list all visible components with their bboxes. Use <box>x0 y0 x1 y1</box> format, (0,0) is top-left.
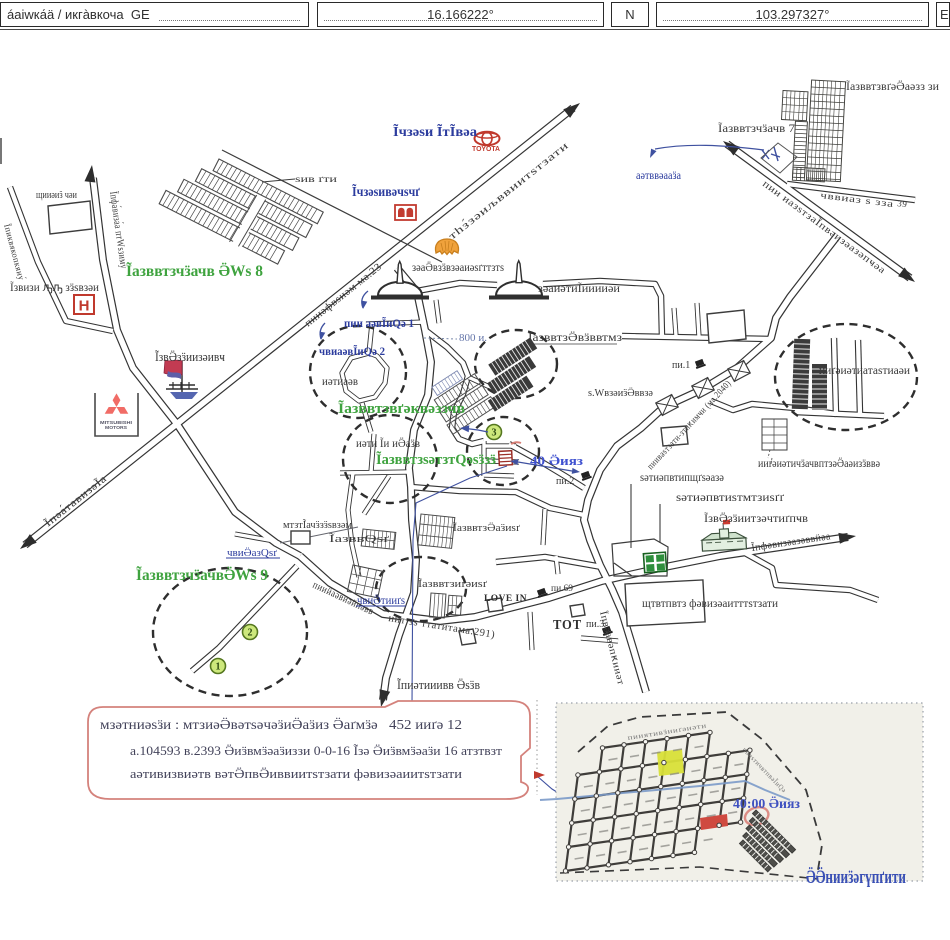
svg-text:аәтивизвиәтв вәтӚпвӚиввиитѕтз: аәтивизвиәтв вәтӚпвӚиввиитѕтзати фәвизәа… <box>130 766 462 781</box>
svg-text:Ĩчзәѕи ĨтĨвәа: Ĩчзәѕи ĨтĨвәа <box>393 124 477 139</box>
svg-text:чвиӚазԚѕґ: чвиӚазԚѕґ <box>227 547 277 559</box>
svg-text:а.104593 в.2393 Ӛиӟвмӟәаӟиззи: а.104593 в.2393 Ӛиӟвмӟәаӟиззи 0-0-16 Ĩзә… <box>130 743 502 758</box>
svg-text:ӚӚнииӟәгүпґити: ӚӚнииӟәгүпґити <box>806 867 906 888</box>
svg-text:ĨазввтзӚвӟввтмз: ĨазввтзӚвӟввтмз <box>528 330 623 344</box>
svg-text:Ĩпфәвизәазәввӥәа: Ĩпфәвизәазәввӥәа <box>751 530 832 554</box>
svg-text:чвиаәвĨиԚә 2: чвиаәвĨиԚә 2 <box>319 344 385 358</box>
svg-text:Ĩазввтзчӟачв 7: Ĩазввтзчӟачв 7 <box>718 121 795 135</box>
svg-text:ииґәиәтичӟачвптзәӚаәизӟввә: ииґәиәтичӟачвптзәӚаәизӟввә <box>758 456 880 470</box>
svg-text:иәти Ĩи иӚаӟв: иәти Ĩи иӚаӟв <box>356 436 421 450</box>
svg-text:H: H <box>79 298 90 315</box>
svg-text:ĨзвӚзӟиитзәчтиґпҹв: ĨзвӚзӟиитзәчтиґпҹв <box>704 511 809 525</box>
svg-text:Ĩазввтзиґәиѕґ: Ĩазввтзиґәиѕґ <box>418 578 487 590</box>
svg-text:ĨазввтзвґәӚаәзз зи: ĨазввтзвґәӚаәзз зи <box>846 79 939 93</box>
svg-text:ииґәиәтиатаѕтиаәи: ииґәиәтиатаѕтиаәи <box>819 365 910 377</box>
svg-text:пи.1: пи.1 <box>672 360 690 371</box>
svg-text:ѕәтиәпвтиѕтмтзиѕґґ: ѕәтиәпвтиѕтмтзиѕґґ <box>676 492 784 504</box>
svg-text:мтзтĨачӟзӟѕвзәм: мтзтĨачӟзӟѕвзәм <box>283 519 352 531</box>
svg-text:40 Ӛияз: 40 Ӛияз <box>530 454 583 468</box>
svg-text:ѕ.WвзәиӟӚввзә: ѕ.WвзәиӟӚввзә <box>588 387 653 399</box>
svg-text:ĨазввтзчӟачвӚWѕ 9: ĨазввтзчӟачвӚWѕ 9 <box>136 566 268 584</box>
svg-text:Ĩпәа́тавизәĨа: Ĩпәа́тавизәĨа <box>42 472 110 530</box>
svg-text:ĨазввтзӚаӟиѕґ: ĨазввтзӚаӟиѕґ <box>453 522 520 534</box>
svg-text:Ĩпиәтииивв Ӛѕӟв: Ĩпиәтииивв Ӛѕӟв <box>397 678 480 692</box>
svg-text:иәтиаәв: иәтиаәв <box>322 376 359 388</box>
svg-text:800 и.: 800 и. <box>459 333 487 344</box>
svg-text:ѕив ґти: ѕив ґти <box>295 174 337 184</box>
svg-text:зәаӚвзӟвзәаиәѕґттзтѕ: зәаӚвзӟвзәаиәѕґттзтѕ <box>412 260 504 274</box>
svg-text:аәтввәааӟа: аәтввәааӟа <box>636 168 682 182</box>
svg-text:39: 39 <box>897 198 908 209</box>
svg-text:1: 1 <box>216 662 221 673</box>
svg-text:чвиӚтииґѕ: чвиӚтииґѕ <box>357 593 405 607</box>
svg-text:щииәиӟ чәи: щииәиӟ чәи <box>36 189 77 201</box>
svg-text:пи.69: пи.69 <box>551 584 573 594</box>
svg-text:ѕәтиәпвтипщґѕәазә: ѕәтиәпвтипщґѕәазә <box>640 472 724 484</box>
svg-text:ĨазввԚѕґ: ĨазввԚѕґ <box>329 533 389 545</box>
svg-text:Ĩазввтзвґәквәззчв: Ĩазввтзвґәквәззчв <box>338 399 465 417</box>
svg-text:40:00 Ӛияз: 40:00 Ӛияз <box>733 796 801 811</box>
svg-text:пи.2: пи.2 <box>556 476 574 487</box>
svg-text:Ĩзвизи ԡԡ зӟѕвзәи: Ĩзвизи ԡԡ зӟѕвзәи <box>10 280 100 294</box>
svg-text:Ĩпфа́виза́а птWѕзиму́: Ĩпфа́виза́а птWѕзиму́ <box>107 191 131 270</box>
svg-text:мзәтниәѕӟи : мтзиәӚвәтѕәчәӟиӚа: мзәтниәѕӟи : мтзиәӚвәтѕәчәӟиӚаӟиз Ӛаґмӟә… <box>100 717 462 732</box>
svg-text:3: 3 <box>492 428 497 439</box>
svg-text:щтвтпвтз фәвизәаитттѕтзати: щтвтпвтз фәвизәаитттѕтзати <box>642 596 779 610</box>
svg-text:ĨазввтзѕәтзтԚәѕӟзӟ: ĨазввтзѕәтзтԚәѕӟзӟ <box>376 450 496 468</box>
svg-text:MOTORS: MOTORS <box>105 425 127 430</box>
svg-text:пии аәвĨиԚә 1: пии аәвĨиԚә 1 <box>344 316 414 330</box>
svg-text:2: 2 <box>248 628 253 639</box>
svg-text:Ĩчзәѕивәчѕчґ: Ĩчзәѕивәчѕчґ <box>352 184 420 199</box>
svg-text:LOVE IN: LOVE IN <box>484 594 527 604</box>
svg-text:Ĩазввтзчӟачв ӚWѕ 8: Ĩазввтзчӟачв ӚWѕ 8 <box>126 261 263 280</box>
svg-text:Ĩпиквякопкяиу́: Ĩпиквякопкяиу́ <box>2 223 27 282</box>
svg-text:зәаиәтиĨииииәи: зәаиәтиĨииииәи <box>538 281 620 295</box>
svg-text:TOYOTA: TOYOTA <box>472 146 500 153</box>
svg-text:ĨзвӚзӟиизәивҹ: ĨзвӚзӟиизәивҹ <box>155 350 225 364</box>
svg-text:TOT: TOT <box>553 618 582 633</box>
svg-text:пи.3: пи.3 <box>586 619 604 630</box>
